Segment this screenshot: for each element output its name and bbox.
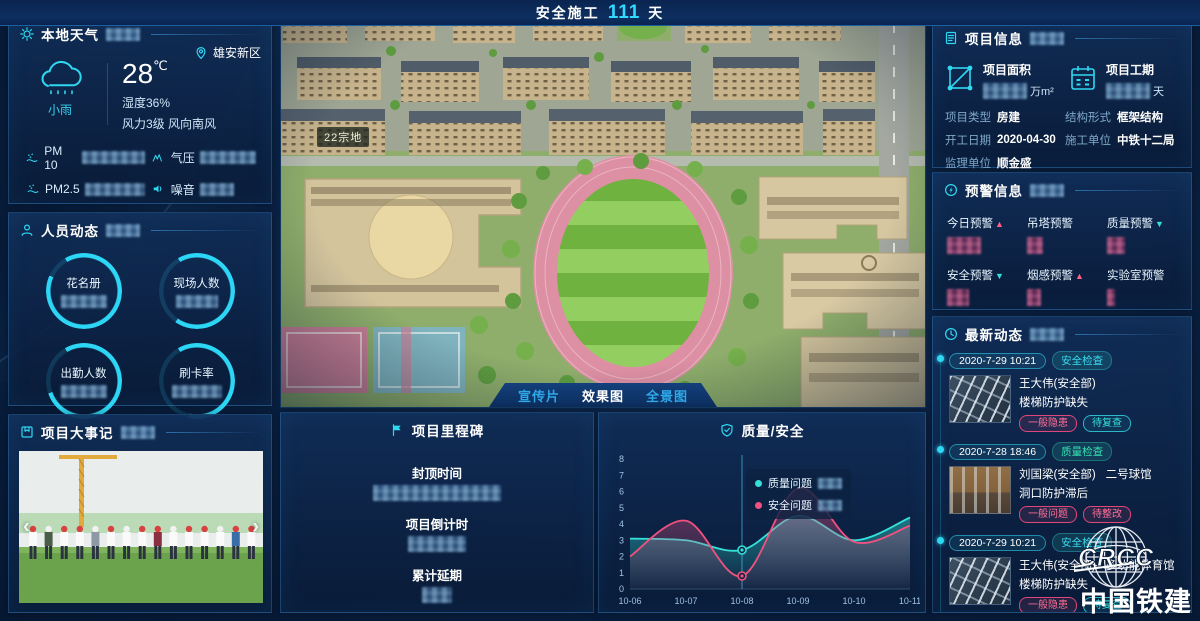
events-title: 项目大事记 [41, 422, 114, 442]
shield-check-icon [720, 423, 735, 438]
ring-label: 刷卡率 [179, 365, 214, 381]
redacted-value [200, 183, 234, 196]
warning-label: 烟感预警▲ [1027, 267, 1101, 283]
ring-label: 现场人数 [174, 275, 220, 291]
noise-icon [151, 182, 166, 197]
project-field: 开工日期2020-04-30 [945, 132, 1061, 148]
weather-title: 本地天气 [41, 24, 99, 44]
news-tag: 待复查 [1083, 597, 1131, 613]
view-mode-tabs: 宣传片效果图全景图 [489, 383, 717, 407]
legend-dot [755, 502, 762, 509]
trend-down-icon: ▼ [1155, 219, 1164, 229]
svg-text:3: 3 [619, 535, 624, 545]
personnel-rings: 花名册现场人数出勤人数刷卡率 [9, 245, 271, 419]
news-tag: 一般隐患 [1019, 597, 1077, 613]
quality-safety-panel: 质量/安全 01234567810-0610-0710-0810-0910-10… [598, 412, 926, 613]
trend-up-icon: ▲ [995, 219, 1004, 229]
warning-item: 今日预警▲ [947, 215, 1021, 255]
svg-text:7: 7 [619, 470, 624, 480]
news-thumbnail[interactable] [949, 375, 1011, 423]
news-date: 2020-7-29 10:21 [949, 535, 1046, 551]
redacted-value [818, 500, 842, 511]
safety-days-prefix: 安全施工 [536, 3, 600, 23]
personnel-ring: 现场人数 [159, 253, 235, 329]
news-item[interactable]: 2020-7-28 18:46质量检查刘国梁(安全部)二号球馆洞口防护滞后一般问… [949, 442, 1183, 523]
redacted-value [200, 151, 256, 164]
calendar-icon [1068, 63, 1098, 93]
alert-icon [943, 183, 958, 198]
chart-tooltip: 质量问题安全问题 [746, 469, 851, 519]
milestone-title: 项目里程碑 [412, 420, 485, 440]
field-label: 监理单位 [945, 155, 991, 171]
stat-unit: 万m² [1030, 83, 1054, 99]
flag-icon [390, 423, 405, 438]
warning-item: 安全预警▼ [947, 267, 1021, 307]
weather-metrics: PM 10气压PM2.5噪音 [9, 132, 271, 198]
svg-text:2: 2 [619, 552, 624, 562]
news-tag: 待整改 [1083, 506, 1131, 523]
temperature: 28℃ [122, 59, 216, 90]
quality-safety-chart: 01234567810-0610-0710-0810-0910-1010-11质… [604, 445, 920, 611]
tab-宣传片[interactable]: 宣传片 [518, 386, 560, 405]
location-pin-icon [194, 45, 209, 60]
chart-title: 质量/安全 [742, 420, 805, 440]
svg-text:4: 4 [619, 519, 624, 529]
stat-unit: 天 [1153, 83, 1164, 99]
metric-label: 气压 [171, 149, 195, 166]
weather-condition: 小雨 [48, 101, 72, 118]
field-value: 框架结构 [1117, 109, 1163, 125]
redacted-value [1027, 289, 1041, 306]
tab-全景图[interactable]: 全景图 [646, 386, 688, 405]
warning-item: 质量预警▼ [1107, 215, 1181, 255]
campus-aerial-render [281, 1, 926, 408]
personnel-panel: 人员动态 花名册现场人数出勤人数刷卡率 [8, 212, 272, 406]
news-panel: 最新动态 2020-7-29 10:21安全检查王大伟(安全部)楼梯防护缺失一般… [932, 316, 1192, 613]
event-photo[interactable]: ‹ › [19, 451, 263, 603]
field-label: 开工日期 [945, 132, 991, 148]
personnel-ring: 刷卡率 [159, 343, 235, 419]
top-header-bar: 安全施工 111 天 [0, 0, 1200, 26]
metric-label: PM2.5 [45, 182, 80, 196]
svg-text:10-09: 10-09 [786, 596, 809, 606]
field-value: 中铁十二局 [1117, 132, 1175, 148]
svg-text:6: 6 [619, 487, 624, 497]
svg-text:10-10: 10-10 [842, 596, 865, 606]
news-thumbnail[interactable] [949, 557, 1011, 605]
warnings-grid: 今日预警▲吊塔预警质量预警▼安全预警▼烟感预警▲实验室预警 [933, 205, 1191, 307]
news-desc: 楼梯防护缺失 [1019, 576, 1183, 592]
field-label: 结构形式 [1065, 109, 1111, 125]
milestone-panel: 项目里程碑 封顶时间项目倒计时累计延期 [280, 412, 594, 613]
land-parcel-label: 22宗地 [317, 127, 369, 147]
weather-metric: 气压 [151, 144, 259, 172]
milestone-label: 项目倒计时 [406, 514, 469, 533]
news-category: 质量检查 [1052, 442, 1112, 461]
redacted-value [373, 485, 501, 501]
project-fields: 项目类型房建结构形式框架结构开工日期2020-04-30施工单位中铁十二局监理单… [933, 101, 1191, 171]
news-person: 王大伟(安全部) [1019, 557, 1096, 573]
pm-icon [25, 182, 40, 197]
news-title: 最新动态 [965, 324, 1023, 344]
warning-label: 质量预警▼ [1107, 215, 1181, 231]
safety-days-unit: 天 [648, 3, 664, 23]
warning-label: 吊塔预警 [1027, 215, 1101, 231]
photo-prev-arrow[interactable]: ‹ [23, 516, 30, 539]
news-tag: 一般问题 [1019, 506, 1077, 523]
news-location: 多功能体育馆 [1106, 557, 1175, 573]
redacted-value [61, 385, 107, 398]
wind: 风力3级 风向南风 [122, 115, 216, 132]
redacted-value [947, 237, 981, 254]
redacted-value [1107, 289, 1115, 306]
region-name: 雄安新区 [213, 44, 261, 61]
header-deco [106, 28, 140, 41]
humidity: 湿度36% [122, 94, 216, 111]
svg-text:8: 8 [619, 454, 624, 464]
news-location: 二号球馆 [1106, 466, 1152, 482]
field-value: 2020-04-30 [997, 134, 1056, 146]
news-tag: 待复查 [1083, 415, 1131, 432]
field-value: 顺金盛 [997, 155, 1032, 171]
svg-text:1: 1 [619, 568, 624, 578]
news-date: 2020-7-28 18:46 [949, 444, 1046, 460]
personnel-ring: 花名册 [46, 253, 122, 329]
project-stats: 项目面积万m²项目工期天 [933, 53, 1191, 101]
calendar-book-icon [19, 425, 34, 440]
safety-days-count: 111 [608, 3, 641, 22]
redacted-value [1107, 237, 1125, 254]
redacted-value [1106, 83, 1150, 99]
news-item[interactable]: 2020-7-29 10:21安全检查王大伟(安全部)楼梯防护缺失一般隐患待复查 [949, 351, 1183, 432]
weather-metric: PM 10 [25, 144, 145, 172]
metric-label: 噪音 [171, 181, 195, 198]
svg-text:10-06: 10-06 [618, 596, 641, 606]
news-category: 安全检查 [1052, 351, 1112, 370]
field-label: 施工单位 [1065, 132, 1111, 148]
group-photo-illustration [19, 451, 263, 603]
redacted-value [82, 151, 145, 164]
legend-row: 安全问题 [755, 497, 842, 513]
personnel-ring: 出勤人数 [46, 343, 122, 419]
legend-label: 安全问题 [768, 497, 812, 513]
redacted-value [172, 385, 222, 398]
person-icon [19, 223, 34, 238]
project-stat: 项目面积万m² [945, 61, 1058, 99]
news-desc: 楼梯防护缺失 [1019, 394, 1183, 410]
news-person: 刘国梁(安全部) [1019, 466, 1096, 482]
events-panel: 项目大事记 ‹ › [8, 414, 272, 613]
trend-down-icon: ▼ [995, 271, 1004, 281]
stat-label: 项目面积 [983, 61, 1054, 78]
trend-up-icon: ▲ [1075, 271, 1084, 281]
svg-text:10-08: 10-08 [730, 596, 753, 606]
stat-label: 项目工期 [1106, 61, 1164, 78]
news-thumbnail[interactable] [949, 466, 1011, 514]
warnings-title: 预警信息 [965, 180, 1023, 200]
milestone-rows: 封顶时间项目倒计时累计延期 [281, 445, 593, 603]
svg-text:0: 0 [619, 584, 624, 594]
milestone-label: 封顶时间 [412, 463, 462, 482]
project-info-title: 项目信息 [965, 28, 1023, 48]
timeline-dot [937, 446, 944, 453]
redacted-value [983, 83, 1027, 99]
svg-text:10-07: 10-07 [674, 596, 697, 606]
personnel-title: 人员动态 [41, 220, 99, 240]
tab-效果图[interactable]: 效果图 [582, 386, 624, 405]
news-list: 2020-7-29 10:21安全检查王大伟(安全部)楼梯防护缺失一般隐患待复查… [933, 349, 1191, 613]
document-icon [943, 31, 958, 46]
warning-item: 吊塔预警 [1027, 215, 1101, 255]
warnings-panel: 预警信息 今日预警▲吊塔预警质量预警▼安全预警▼烟感预警▲实验室预警 [932, 172, 1192, 310]
field-value: 房建 [997, 109, 1020, 125]
project-field: 施工单位中铁十二局 [1065, 132, 1181, 148]
warning-label: 今日预警▲ [947, 215, 1021, 231]
legend-row: 质量问题 [755, 475, 842, 491]
news-desc: 洞口防护滞后 [1019, 485, 1183, 501]
redacted-value [176, 295, 218, 308]
ring-label: 花名册 [66, 275, 101, 291]
pressure-icon [151, 150, 166, 165]
field-label: 项目类型 [945, 109, 991, 125]
ring-label: 出勤人数 [61, 365, 107, 381]
news-category: 安全检查 [1052, 533, 1112, 552]
rain-cloud-icon [37, 59, 83, 99]
main-render-view[interactable]: 22宗地 宣传片效果图全景图 [280, 0, 926, 408]
warning-item: 实验室预警 [1107, 267, 1181, 307]
legend-label: 质量问题 [768, 475, 812, 491]
project-field: 结构形式框架结构 [1065, 109, 1181, 125]
redacted-value [818, 478, 842, 489]
news-person: 王大伟(安全部) [1019, 375, 1096, 391]
redacted-value [422, 587, 452, 603]
sun-icon [19, 27, 34, 42]
project-stat: 项目工期天 [1068, 61, 1181, 99]
project-info-panel: 项目信息 项目面积万m²项目工期天 项目类型房建结构形式框架结构开工日期2020… [932, 20, 1192, 168]
svg-text:5: 5 [619, 503, 624, 513]
weather-metric: PM2.5 [25, 181, 145, 198]
warning-item: 烟感预警▲ [1027, 267, 1101, 307]
milestone-label: 累计延期 [412, 565, 462, 584]
redacted-value [1027, 237, 1043, 254]
news-date: 2020-7-29 10:21 [949, 353, 1046, 369]
region-badge: 雄安新区 [194, 44, 261, 61]
project-field: 项目类型房建 [945, 109, 1061, 125]
timeline-dot [937, 537, 944, 544]
legend-dot [755, 480, 762, 487]
area-icon [945, 63, 975, 93]
svg-text:10-11: 10-11 [899, 596, 920, 606]
pm-icon [25, 150, 39, 165]
redacted-value [85, 183, 145, 196]
divider [107, 63, 108, 125]
clock-icon [943, 327, 958, 342]
news-tag: 一般隐患 [1019, 415, 1077, 432]
photo-next-arrow[interactable]: › [252, 516, 259, 539]
project-field: 监理单位顺金盛 [945, 155, 1061, 171]
warning-label: 安全预警▼ [947, 267, 1021, 283]
timeline-dot [937, 355, 944, 362]
weather-panel: 本地天气 雄安新区 小雨 28℃ 湿度36% 风力3级 风向南风 PM 10气压… [8, 16, 272, 204]
redacted-value [61, 295, 107, 308]
metric-label: PM 10 [44, 144, 77, 172]
redacted-value [408, 536, 466, 552]
warning-label: 实验室预警 [1107, 267, 1181, 283]
redacted-value [947, 289, 969, 306]
news-item[interactable]: 2020-7-29 10:21安全检查王大伟(安全部)多功能体育馆楼梯防护缺失一… [949, 533, 1183, 613]
weather-metric: 噪音 [151, 181, 259, 198]
